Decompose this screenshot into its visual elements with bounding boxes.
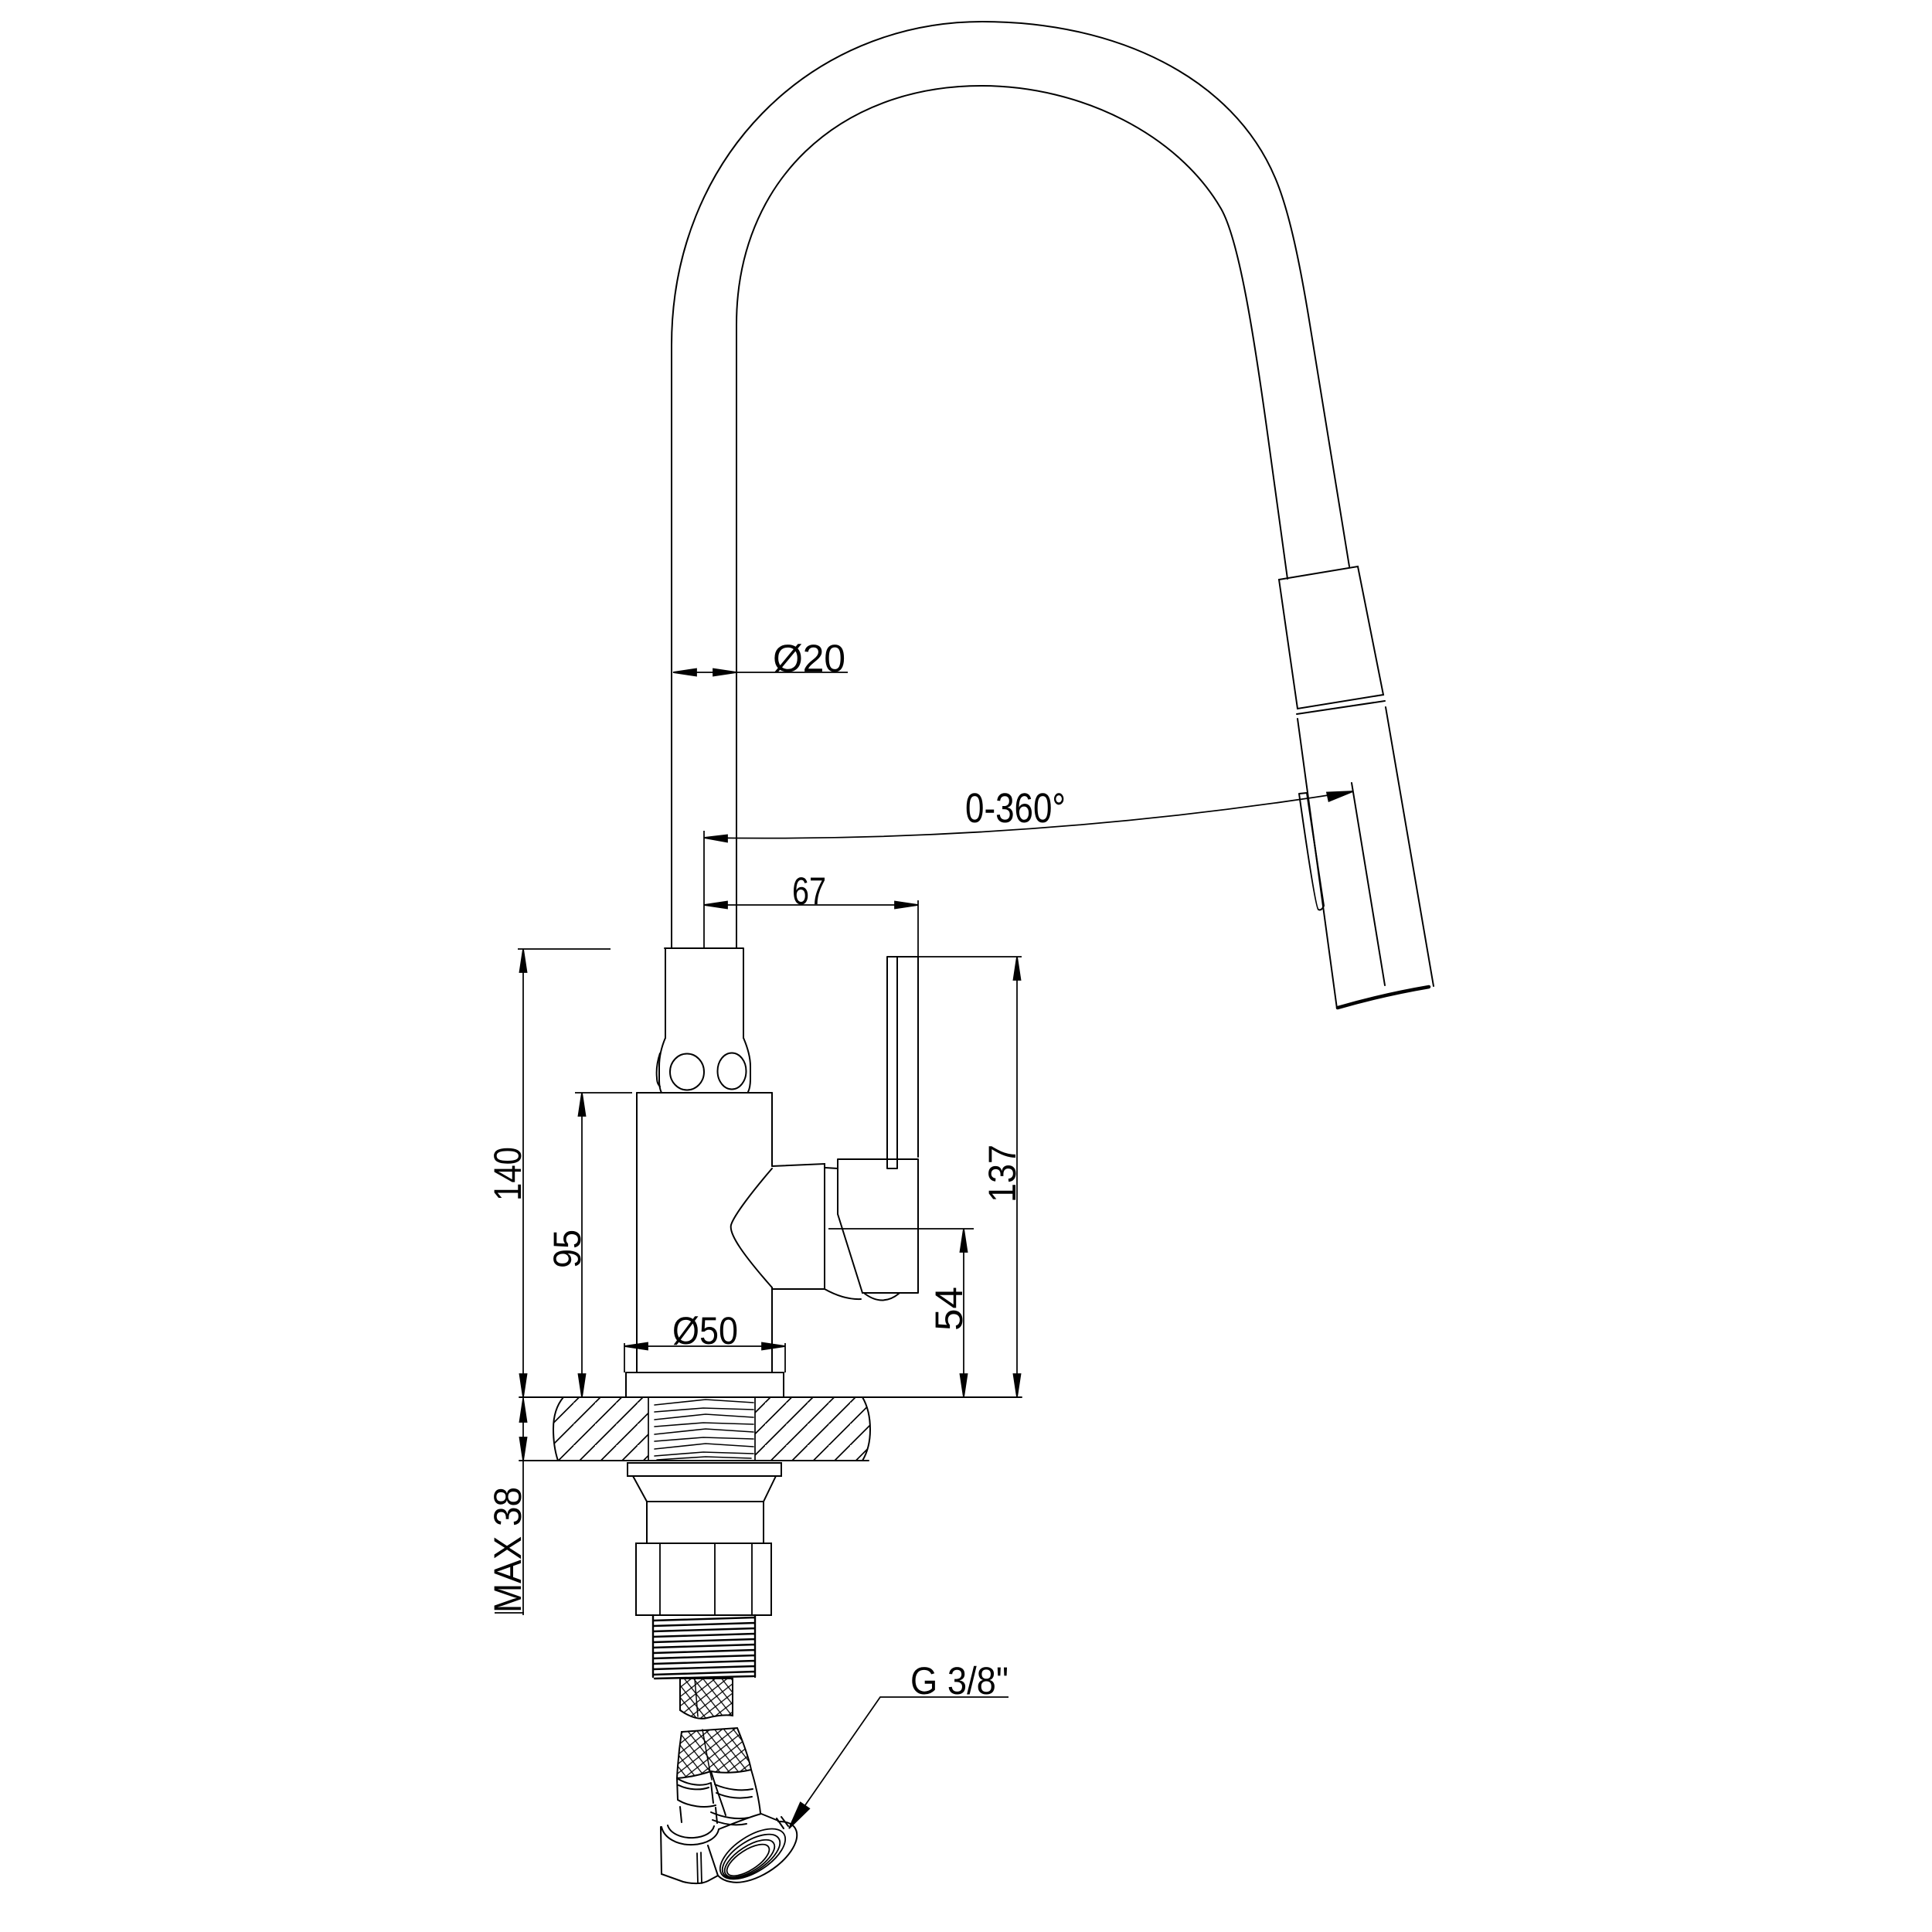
- svg-text:140: 140: [486, 1147, 529, 1201]
- svg-text:0-360°: 0-360°: [965, 785, 1066, 832]
- svg-text:G 3/8": G 3/8": [910, 1659, 1009, 1702]
- svg-text:MAX 38: MAX 38: [486, 1487, 529, 1613]
- svg-text:137: 137: [981, 1145, 1024, 1202]
- svg-text:67: 67: [792, 869, 826, 913]
- svg-text:Ø50: Ø50: [672, 1309, 738, 1352]
- svg-text:54: 54: [927, 1287, 971, 1331]
- svg-text:Ø20: Ø20: [773, 637, 845, 680]
- svg-text:95: 95: [546, 1230, 589, 1268]
